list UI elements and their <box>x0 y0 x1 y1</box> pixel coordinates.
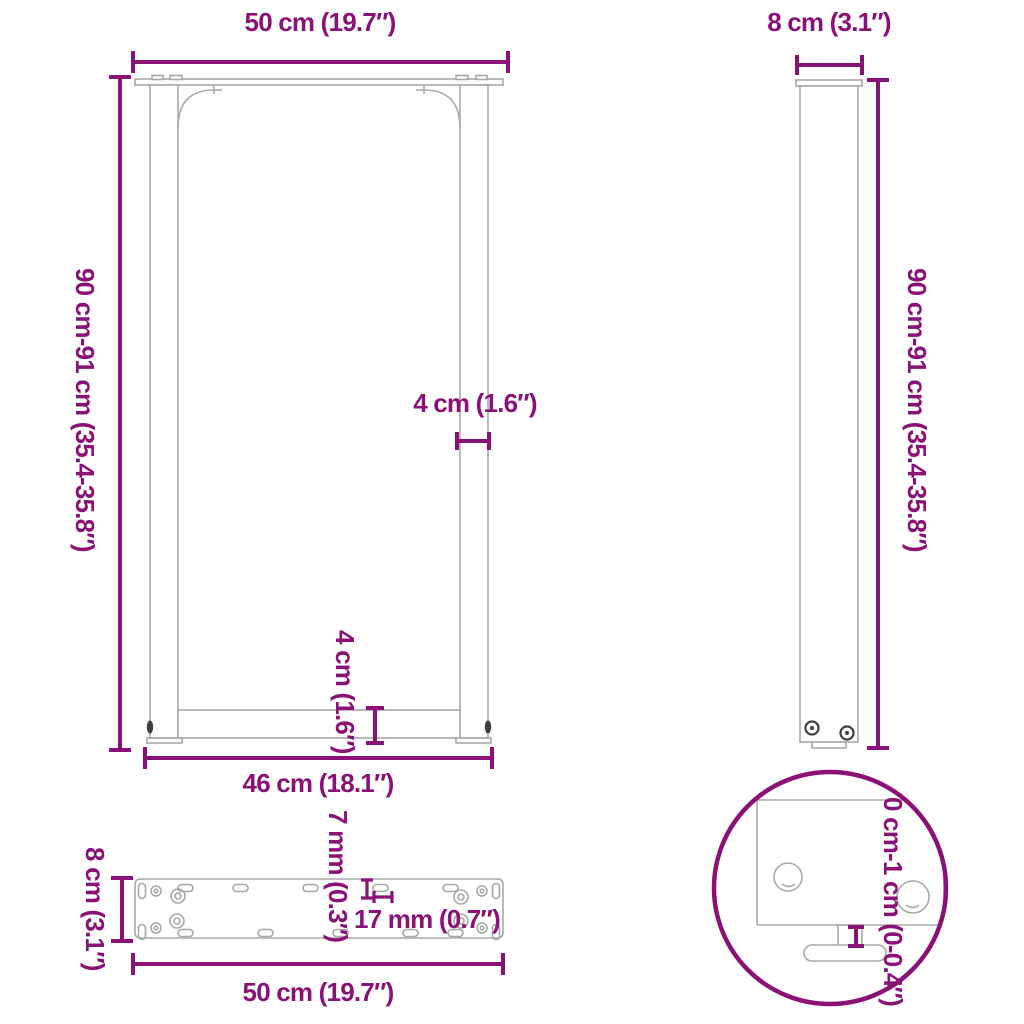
dim-line-side-height <box>867 80 889 748</box>
dim-label-leg-thickness: 4 cm (1.6″) <box>395 389 555 419</box>
dimension-diagram: 50 cm (19.7″) 8 cm (3.1″) 90 cm-91 cm (3… <box>0 0 1024 1024</box>
dim-label-side-height: 90 cm-91 cm (35.4-35.8″) <box>900 262 934 557</box>
diagram-line-art <box>0 0 1024 1024</box>
dim-line-plate-width <box>133 953 503 975</box>
dim-line-inner-width <box>145 747 492 769</box>
dim-line-plate-depth <box>111 878 133 941</box>
dim-label-inner-width: 46 cm (18.1″) <box>168 769 468 799</box>
side-top-plate <box>796 80 862 86</box>
side-column <box>800 86 858 742</box>
front-left-upright <box>150 85 178 738</box>
dim-line-front-width <box>133 51 508 73</box>
dim-label-adjustment-range: 0 cm-1 cm (0-0.4″) <box>876 797 910 981</box>
dim-label-front-height: 90 cm-91 cm (35.4-35.8″) <box>68 262 102 557</box>
dim-label-slot-height: 7 mm (0.3″) <box>321 804 355 948</box>
front-crossbar <box>178 710 460 738</box>
dim-line-side-depth <box>797 55 862 75</box>
dim-label-crossbar-height: 4 cm (1.6″) <box>328 626 362 758</box>
dim-label-slot-length: 17 mm (0.7″) <box>352 905 502 935</box>
dim-label-plate-depth: 8 cm (3.1″) <box>78 842 112 976</box>
leveler-foot-pad <box>804 945 886 961</box>
dim-label-plate-width: 50 cm (19.7″) <box>168 978 468 1008</box>
dim-line-front-height <box>109 77 131 750</box>
front-top-plate <box>135 79 503 85</box>
dim-label-side-depth: 8 cm (3.1″) <box>729 8 929 38</box>
detail-circle <box>714 772 946 1004</box>
side-view-drawing <box>796 80 862 748</box>
dim-label-front-width: 50 cm (19.7″) <box>170 8 470 38</box>
foot-detail-drawing <box>714 770 946 1004</box>
